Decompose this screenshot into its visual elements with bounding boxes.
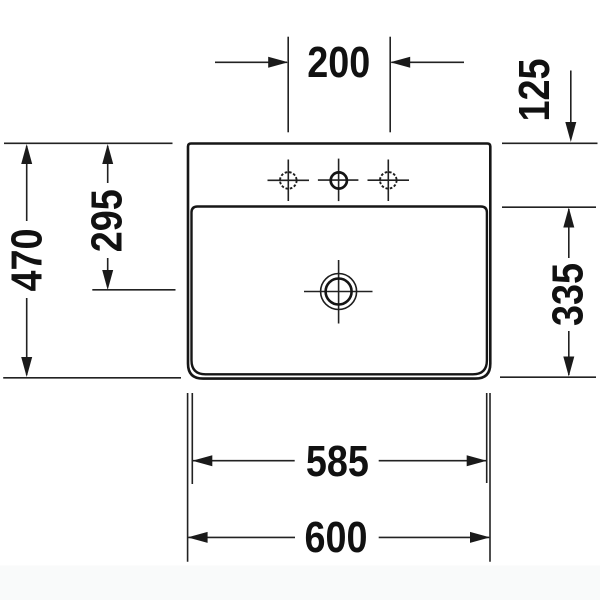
svg-text:585: 585 bbox=[306, 438, 369, 486]
svg-text:125: 125 bbox=[511, 59, 559, 122]
svg-text:200: 200 bbox=[307, 39, 370, 87]
svg-text:470: 470 bbox=[4, 229, 52, 292]
svg-text:335: 335 bbox=[545, 263, 593, 326]
svg-text:295: 295 bbox=[84, 189, 132, 252]
svg-text:600: 600 bbox=[305, 514, 368, 562]
